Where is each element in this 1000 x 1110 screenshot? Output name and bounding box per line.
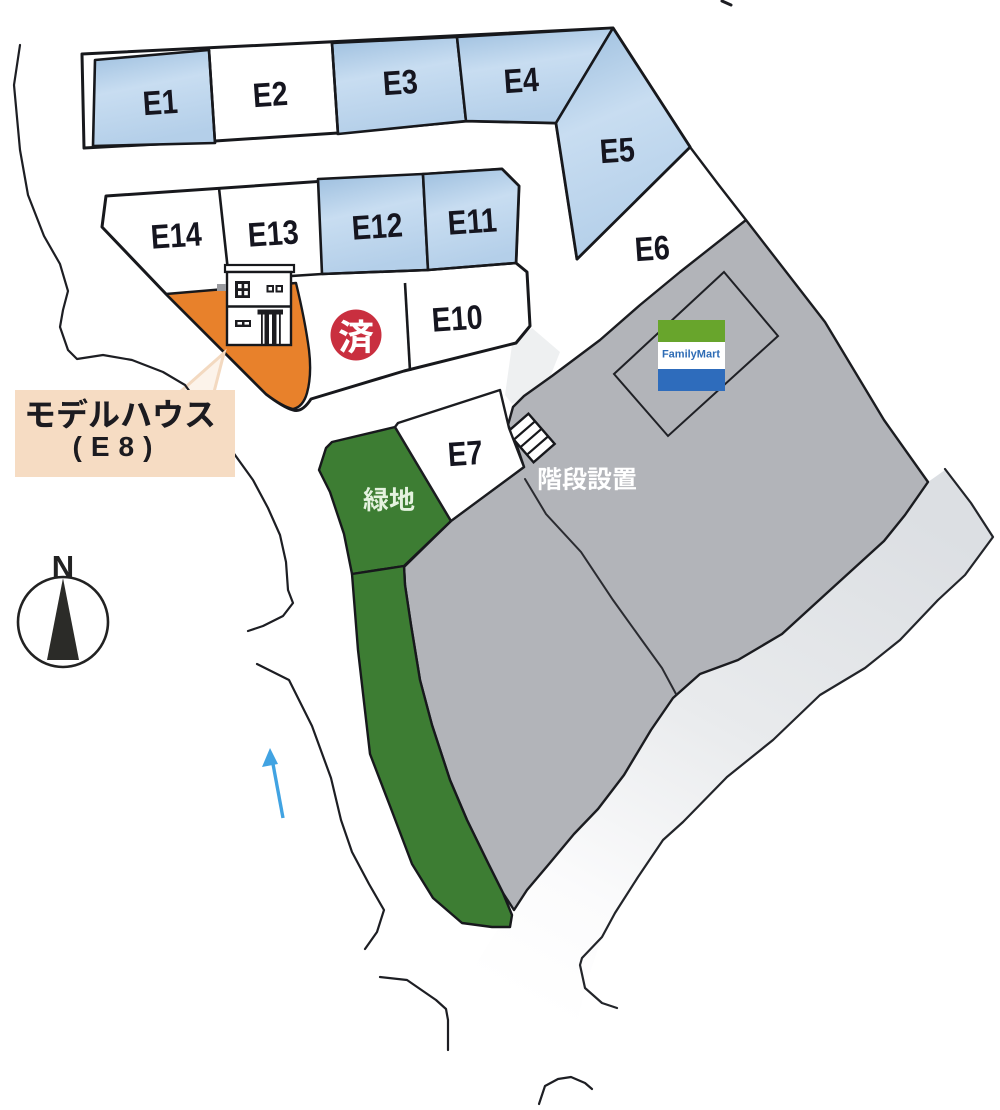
svg-text:E3: E3 [381, 63, 418, 103]
svg-text:E7: E7 [446, 434, 483, 474]
svg-text:(E8): (E8) [73, 431, 162, 462]
svg-text:E5: E5 [598, 131, 635, 171]
svg-text:E4: E4 [502, 61, 540, 101]
svg-text:E2: E2 [251, 75, 288, 115]
svg-text:E6: E6 [633, 229, 670, 269]
svg-text:E13: E13 [247, 213, 300, 254]
svg-text:E11: E11 [446, 201, 498, 242]
svg-text:N: N [52, 549, 74, 584]
svg-text:FamilyMart: FamilyMart [662, 349, 720, 361]
svg-text:E1: E1 [141, 83, 178, 123]
svg-text:E14: E14 [150, 215, 204, 256]
svg-text:E12: E12 [351, 206, 404, 247]
svg-text:E10: E10 [431, 298, 484, 339]
